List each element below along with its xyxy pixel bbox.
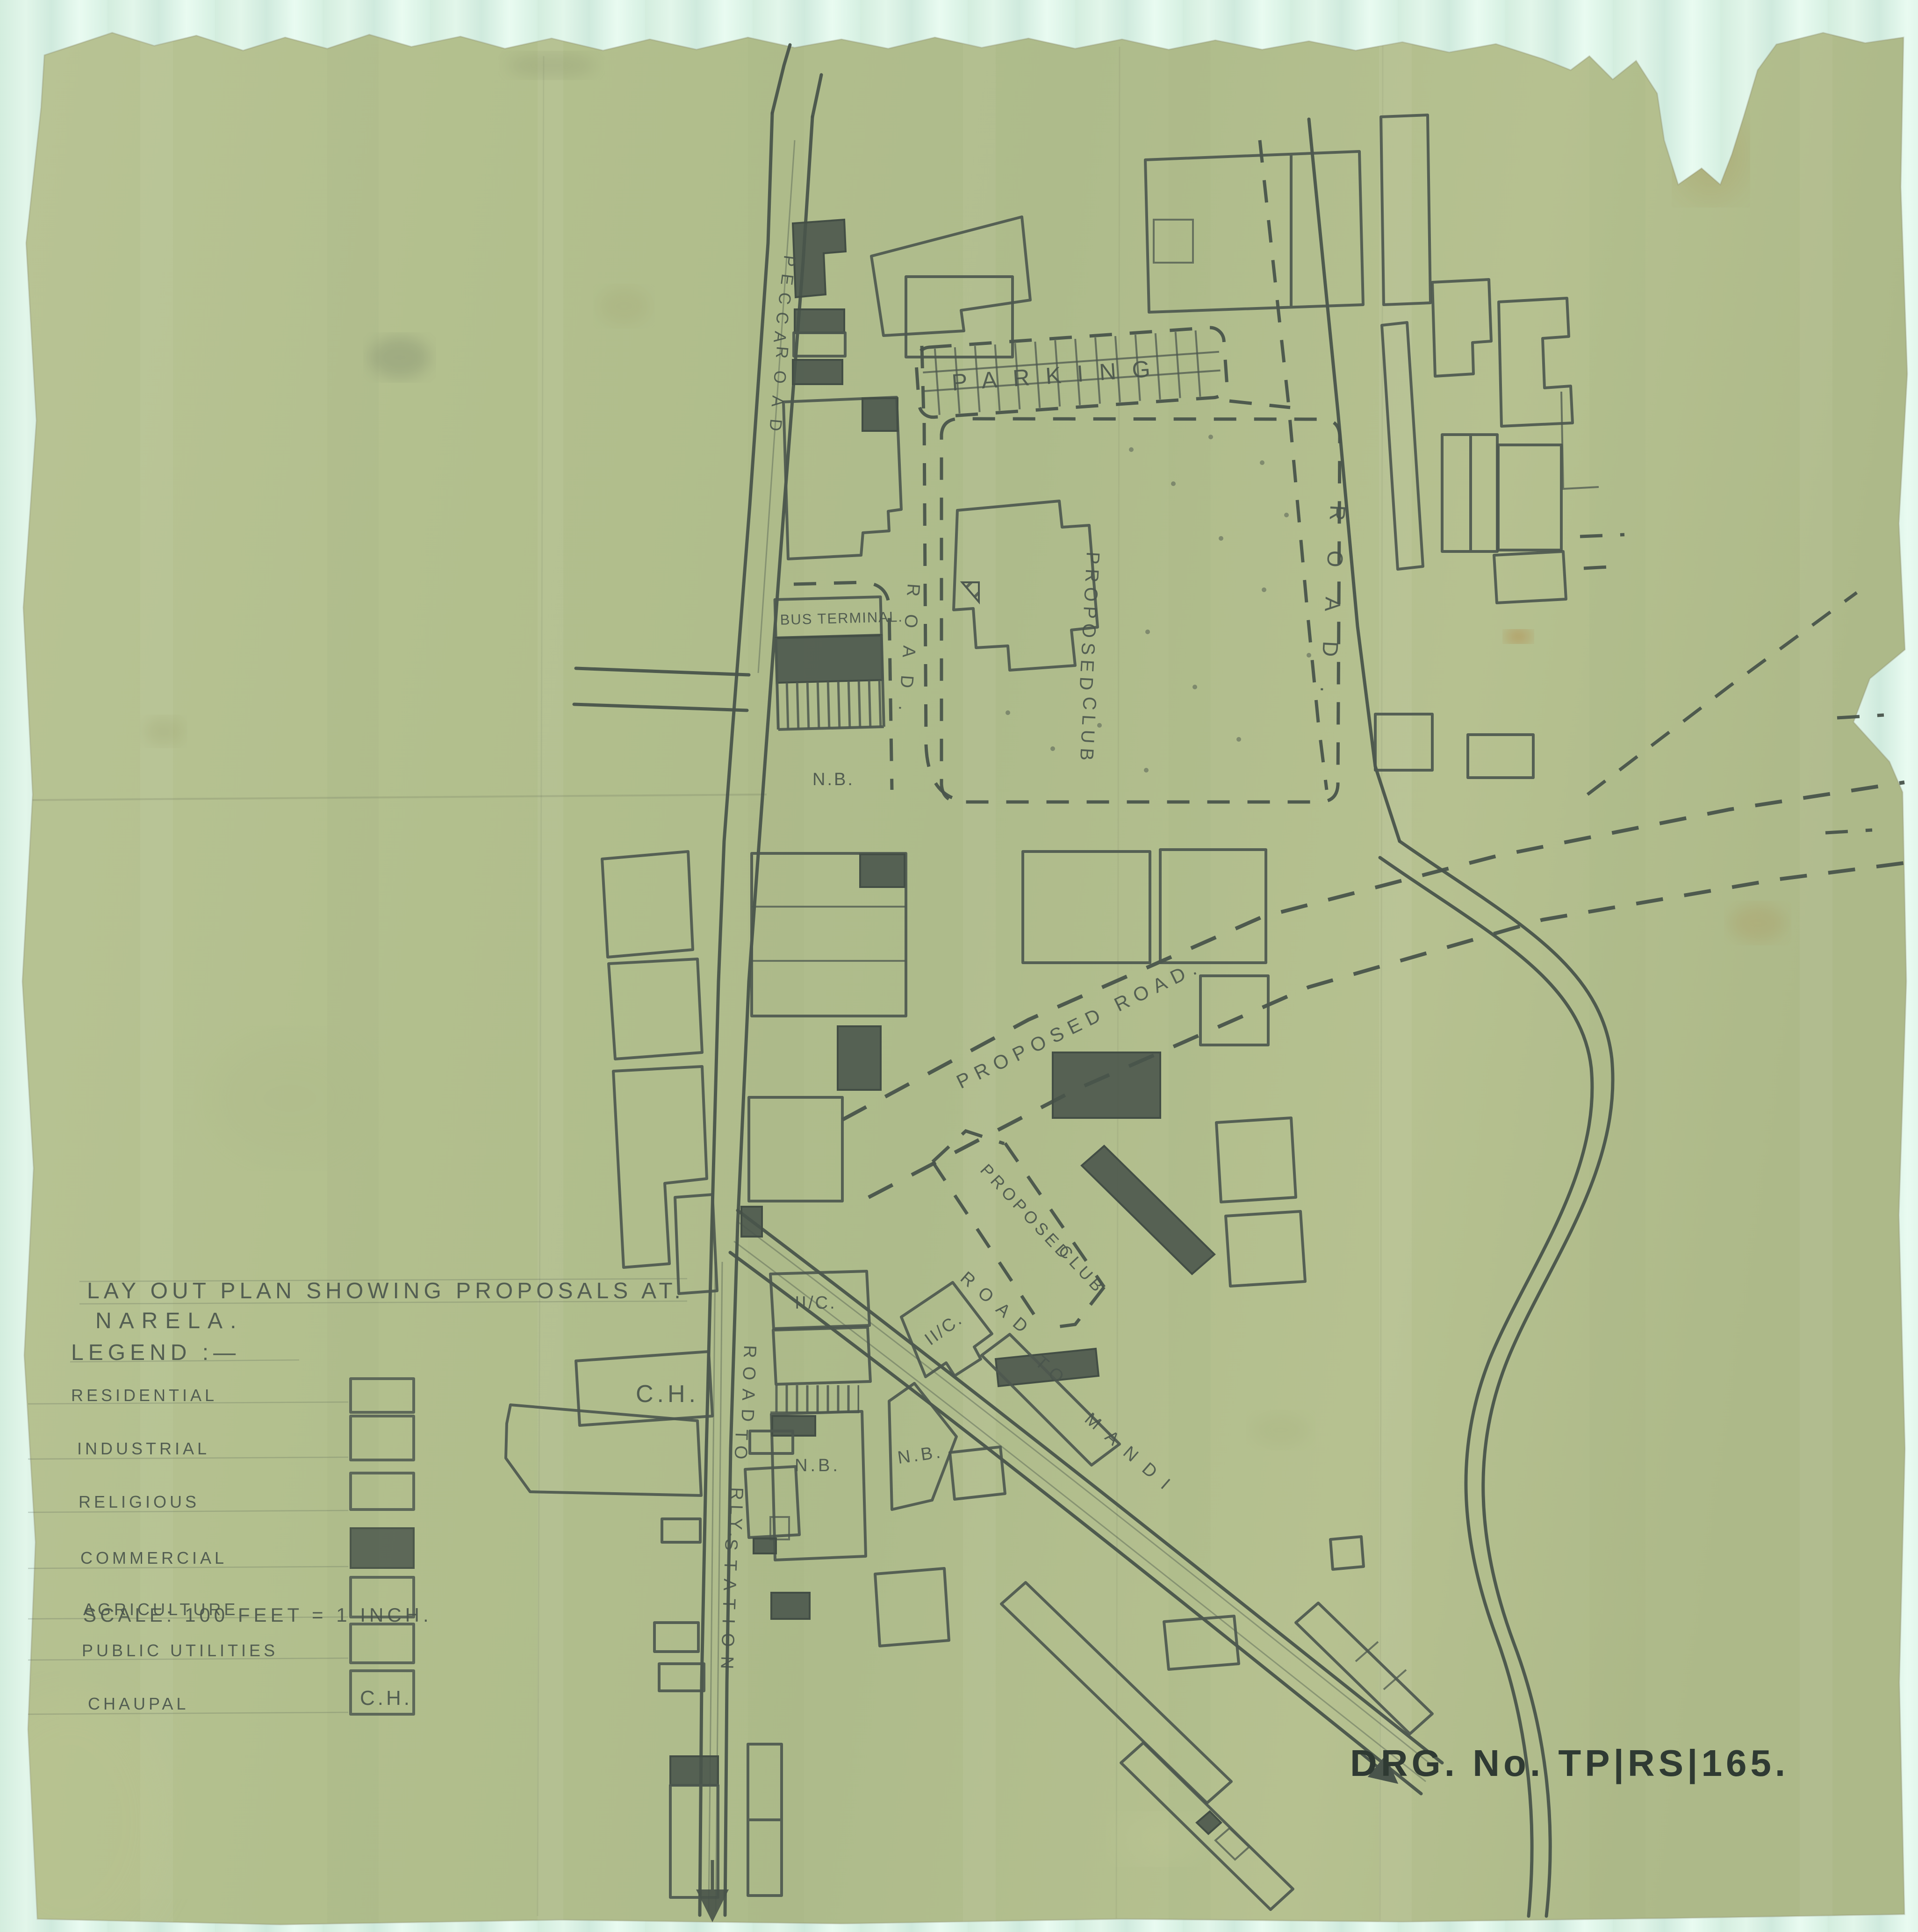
commercial-building	[1053, 1052, 1160, 1118]
legend-label-religious: RELIGIOUS	[79, 1492, 200, 1511]
commercial-building	[795, 309, 844, 333]
rly-road-label-word1: ROAD	[737, 1345, 760, 1431]
commercial-building	[741, 1207, 762, 1237]
legend-label-industrial: INDUSTRIAL	[77, 1439, 210, 1458]
iic-label-1: II/C.	[795, 1293, 837, 1313]
commercial-building	[862, 398, 898, 431]
commercial-building	[771, 1593, 810, 1619]
legend-heading: LEGEND :—	[71, 1340, 240, 1365]
legend-label-residential: RESIDENTIAL	[71, 1386, 217, 1405]
rly-road-label-word2: TO	[730, 1429, 751, 1466]
plan-title-line1: LAY OUT PLAN SHOWING PROPOSALS AT.	[87, 1279, 685, 1303]
legend-label-chaupal: CHAUPAL	[88, 1694, 189, 1713]
scanned-plan-page: PARKING	[0, 0, 1918, 1932]
chaupal-map-label: C.H.	[636, 1381, 699, 1408]
nb-label: N.B.	[812, 770, 855, 789]
rly-road-label-word3: RLY.	[725, 1487, 747, 1542]
comb-strip-building	[770, 1385, 859, 1412]
legend-label-public-utilities: PUBLIC UTILITIES	[82, 1641, 278, 1660]
legend-label-commercial: COMMERCIAL	[80, 1548, 227, 1567]
layout-plan-map: PARKING	[0, 0, 1918, 1932]
nb-label-2: N.B.	[795, 1456, 840, 1475]
drawing-number: DRG. No. TP|RS|165.	[1350, 1742, 1789, 1784]
legend-swatch-commercial	[351, 1528, 414, 1568]
proposed-club-label-word2: CLUB	[1076, 696, 1100, 766]
commercial-building	[754, 1538, 776, 1553]
plan-title-line2: NARELA.	[95, 1309, 244, 1333]
scale-note: SCALE: 100 FEET = 1 INCH.	[83, 1604, 432, 1626]
paper-sheet	[0, 0, 1907, 1932]
bus-terminal-label: BUS TERMINAL.	[780, 608, 903, 628]
legend-swatch-chaupal-text: C.H.	[360, 1687, 412, 1710]
commercial-building	[838, 1026, 881, 1090]
commercial-building	[793, 360, 842, 384]
